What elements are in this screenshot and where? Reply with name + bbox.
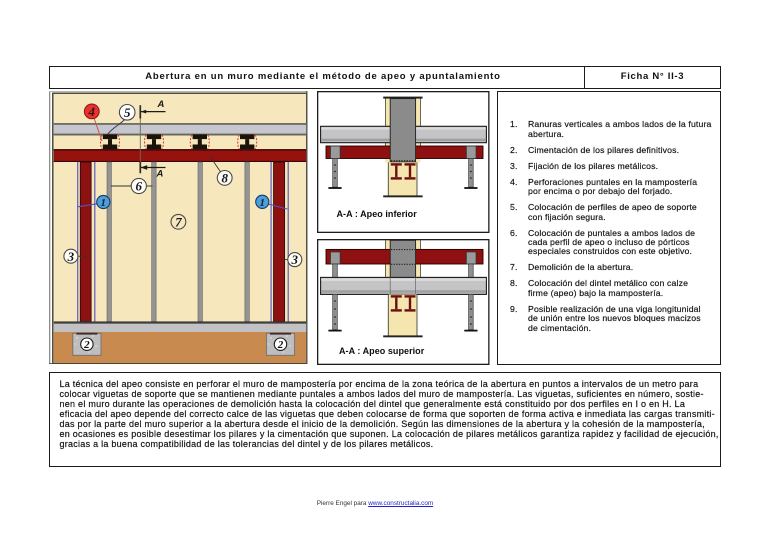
svg-text:8: 8: [221, 170, 228, 185]
svg-text:A-A : Apeo superior: A-A : Apeo superior: [339, 346, 425, 356]
svg-text:1: 1: [101, 197, 107, 209]
svg-text:5: 5: [124, 104, 131, 119]
svg-text:3: 3: [291, 252, 299, 267]
svg-text:4: 4: [88, 104, 96, 119]
svg-text:A-A : Apeo inferior: A-A : Apeo inferior: [337, 209, 418, 219]
svg-text:3: 3: [67, 248, 75, 263]
svg-text:7: 7: [175, 214, 182, 229]
svg-text:6: 6: [136, 178, 143, 193]
svg-text:2: 2: [83, 339, 90, 351]
svg-text:1: 1: [260, 196, 266, 208]
svg-text:A: A: [156, 168, 164, 179]
svg-text:2: 2: [277, 339, 284, 351]
svg-text:A: A: [157, 99, 165, 110]
